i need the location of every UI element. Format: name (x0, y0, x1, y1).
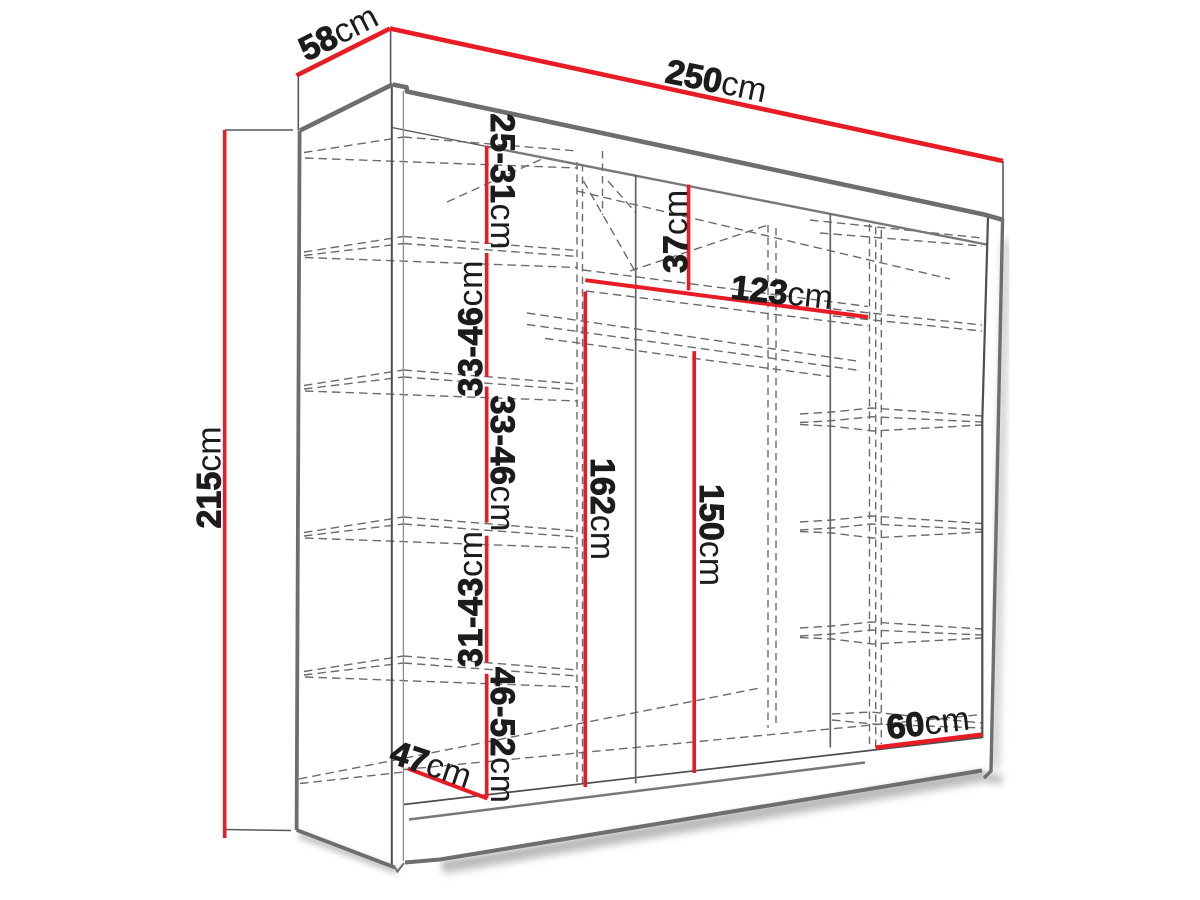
svg-text:215cm: 215cm (191, 426, 229, 528)
svg-text:25-31cm: 25-31cm (483, 114, 521, 251)
svg-text:33-46cm: 33-46cm (452, 260, 490, 397)
svg-text:150cm: 150cm (692, 484, 730, 586)
svg-text:47cm: 47cm (385, 734, 476, 796)
svg-text:123cm: 123cm (729, 269, 834, 317)
svg-text:37cm: 37cm (657, 190, 695, 273)
svg-text:46-52cm: 46-52cm (483, 667, 521, 804)
svg-text:162cm: 162cm (583, 458, 621, 560)
svg-text:33-46cm: 33-46cm (483, 396, 521, 533)
svg-text:31-43cm: 31-43cm (452, 531, 490, 668)
